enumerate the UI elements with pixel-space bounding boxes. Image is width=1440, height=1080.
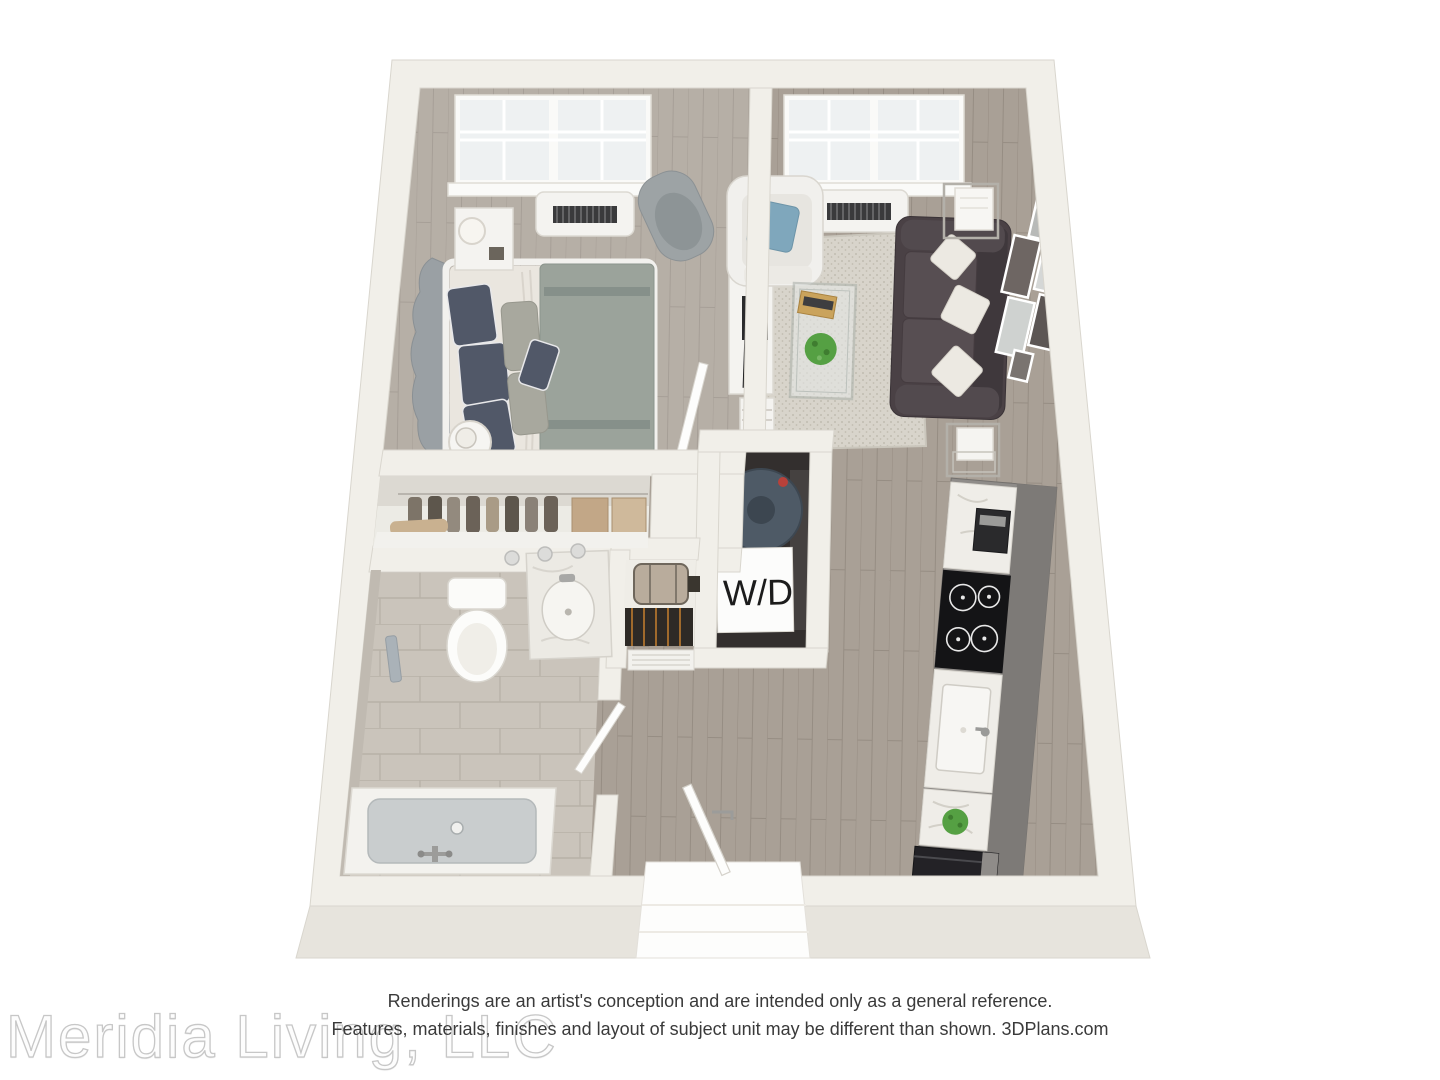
washer-dryer-label: W/D <box>723 571 794 613</box>
floor-plan-canvas: W/D <box>0 0 1440 1080</box>
table-lamp <box>459 218 485 244</box>
vanity-sink <box>526 551 612 660</box>
toilet <box>447 578 507 682</box>
kitchen-counter-coffee <box>943 482 1016 573</box>
espresso-machine <box>973 508 1011 553</box>
bedroom-ac-unit <box>536 192 634 236</box>
bedroom-window <box>448 95 658 196</box>
entry-landing <box>636 862 810 958</box>
living-room-ac-unit <box>810 190 908 232</box>
bathtub <box>344 788 556 874</box>
coat-closet <box>622 560 700 670</box>
bed <box>411 258 654 470</box>
faucet <box>559 574 575 583</box>
vanity-light <box>505 551 519 565</box>
nightstand-top <box>455 208 513 270</box>
armchair <box>727 176 823 286</box>
drain <box>451 822 463 834</box>
table-lamp <box>456 428 476 448</box>
kitchen-counter-plant <box>919 789 992 851</box>
vanity-light <box>538 547 552 561</box>
kitchen-sink <box>924 669 1002 792</box>
suitcase <box>634 564 688 604</box>
bed-blanket <box>540 264 654 470</box>
wardrobe-closet <box>373 476 650 548</box>
floor-plan-rendering: W/D <box>0 0 1440 1080</box>
coffee-table <box>790 283 856 399</box>
vanity-light <box>571 544 585 558</box>
disclaimer-line2: Features, materials, finishes and layout… <box>0 1016 1440 1042</box>
sofa <box>890 216 1012 420</box>
cooktop <box>935 570 1011 674</box>
disclaimer: Renderings are an artist's conception an… <box>0 988 1440 1042</box>
disclaimer-line1: Renderings are an artist's conception an… <box>0 988 1440 1014</box>
